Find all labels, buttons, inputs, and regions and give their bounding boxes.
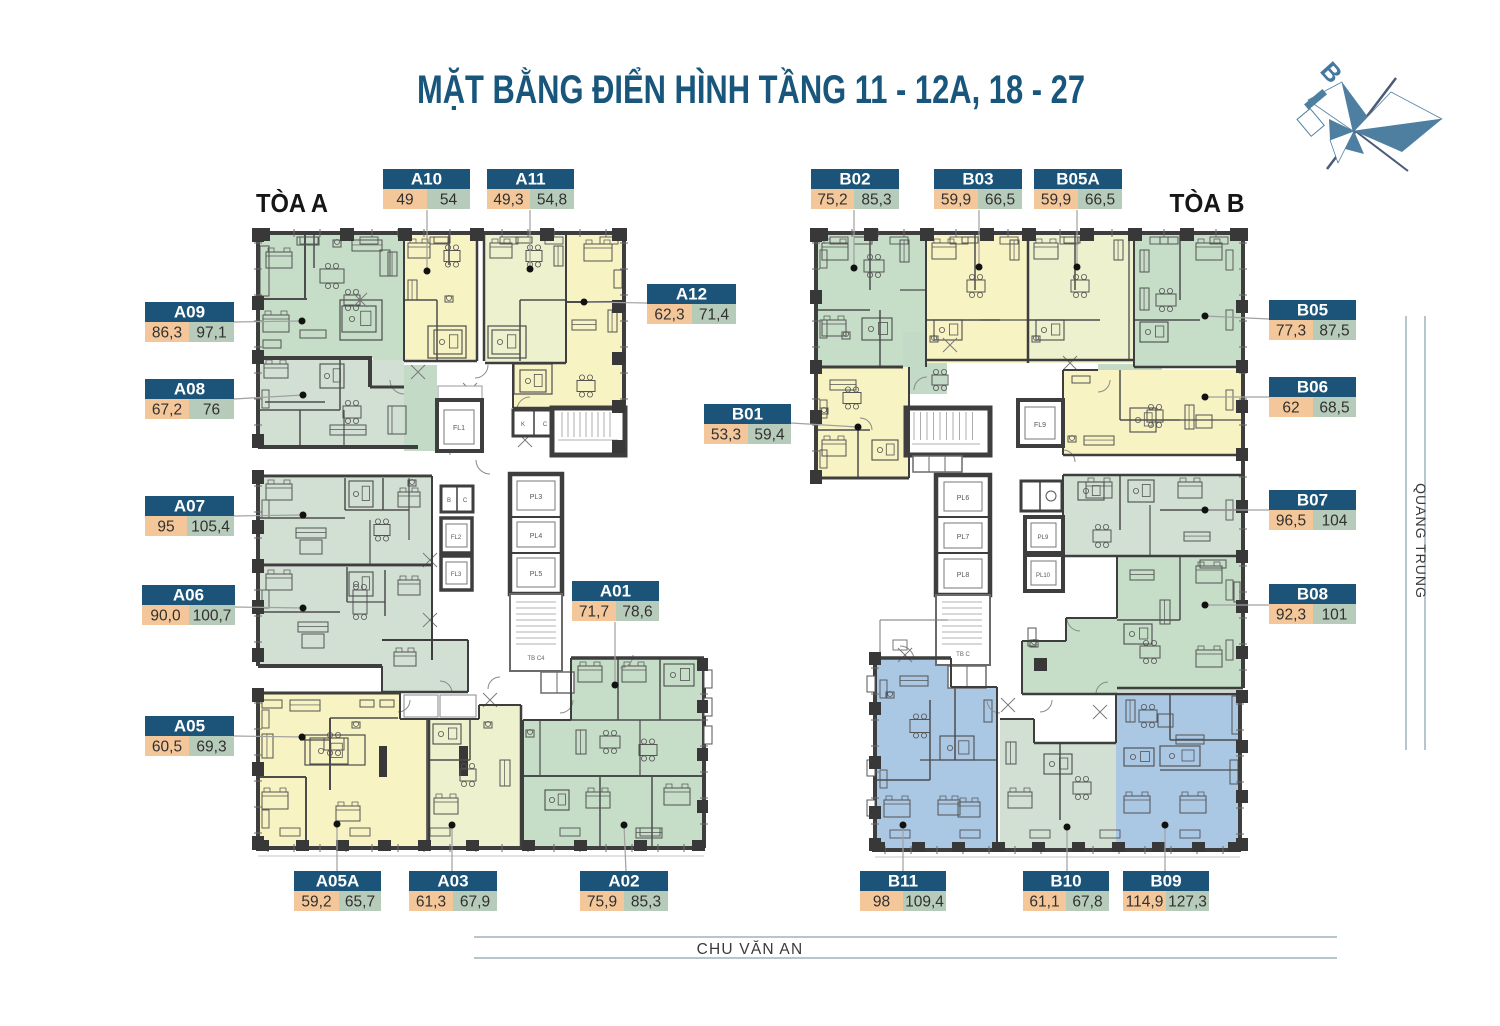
svg-text:85,3: 85,3 [861, 192, 891, 209]
svg-text:B10: B10 [1050, 872, 1081, 891]
svg-text:K: K [521, 422, 525, 428]
svg-text:CHU VĂN AN: CHU VĂN AN [697, 941, 804, 958]
svg-text:PL4: PL4 [530, 533, 543, 540]
svg-text:TÒA A: TÒA A [256, 188, 328, 218]
svg-text:A10: A10 [411, 170, 442, 189]
svg-text:60,5: 60,5 [152, 739, 182, 756]
svg-text:B11: B11 [888, 872, 918, 891]
svg-text:68,5: 68,5 [1319, 400, 1349, 417]
svg-text:87,5: 87,5 [1319, 323, 1349, 340]
svg-text:109,4: 109,4 [905, 894, 944, 911]
svg-text:A12: A12 [676, 285, 707, 304]
svg-text:54,8: 54,8 [537, 192, 567, 209]
svg-text:67,2: 67,2 [152, 402, 182, 419]
svg-text:61,1: 61,1 [1029, 894, 1059, 911]
svg-text:PL5: PL5 [530, 571, 543, 578]
svg-text:B05A: B05A [1056, 170, 1099, 189]
svg-text:C: C [463, 498, 468, 504]
svg-text:A08: A08 [174, 380, 205, 399]
svg-text:97,1: 97,1 [196, 325, 226, 342]
svg-text:59,9: 59,9 [941, 192, 971, 209]
svg-text:76: 76 [203, 402, 220, 419]
svg-text:B06: B06 [1297, 378, 1328, 397]
svg-text:B09: B09 [1150, 872, 1181, 891]
svg-text:B05: B05 [1297, 301, 1328, 320]
svg-text:QUANG TRUNG: QUANG TRUNG [1413, 483, 1429, 599]
svg-text:85,3: 85,3 [631, 894, 661, 911]
svg-text:59,4: 59,4 [754, 427, 785, 444]
svg-text:98: 98 [873, 894, 890, 911]
svg-text:96,5: 96,5 [1276, 513, 1306, 530]
svg-text:A02: A02 [608, 872, 639, 891]
svg-text:69,3: 69,3 [196, 739, 226, 756]
svg-text:C: C [543, 422, 548, 428]
svg-text:A07: A07 [174, 497, 205, 516]
svg-text:66,5: 66,5 [985, 192, 1015, 209]
svg-text:FL2: FL2 [451, 535, 462, 541]
svg-text:101: 101 [1322, 607, 1348, 624]
svg-text:75,9: 75,9 [587, 894, 617, 911]
svg-text:65,7: 65,7 [345, 894, 375, 911]
svg-text:PL6: PL6 [957, 495, 970, 502]
svg-text:B01: B01 [732, 405, 763, 424]
svg-text:PL9: PL9 [1038, 535, 1049, 541]
svg-text:TB C4: TB C4 [527, 656, 545, 662]
svg-text:A03: A03 [437, 872, 468, 891]
svg-text:61,3: 61,3 [416, 894, 446, 911]
svg-text:71,4: 71,4 [699, 307, 730, 324]
svg-text:A09: A09 [174, 303, 205, 322]
svg-text:A05: A05 [174, 717, 205, 736]
svg-text:77,3: 77,3 [1276, 323, 1306, 340]
svg-text:71,7: 71,7 [579, 604, 609, 621]
svg-text:59,2: 59,2 [301, 894, 331, 911]
svg-text:A05A: A05A [316, 872, 359, 891]
svg-text:FL9: FL9 [1034, 422, 1046, 429]
svg-text:62: 62 [1282, 400, 1299, 417]
svg-text:49: 49 [396, 192, 413, 209]
svg-text:105,4: 105,4 [191, 519, 230, 536]
svg-text:66,5: 66,5 [1085, 192, 1115, 209]
svg-text:PL8: PL8 [957, 572, 970, 579]
svg-text:B03: B03 [962, 170, 993, 189]
svg-text:FL3: FL3 [451, 572, 462, 578]
svg-text:104: 104 [1322, 513, 1348, 530]
svg-text:A11: A11 [515, 170, 545, 189]
svg-text:PL3: PL3 [530, 494, 543, 501]
svg-text:67,8: 67,8 [1072, 894, 1102, 911]
svg-text:62,3: 62,3 [654, 307, 684, 324]
svg-text:FL1: FL1 [453, 425, 465, 432]
svg-text:A06: A06 [173, 586, 204, 605]
svg-text:PL10: PL10 [1036, 573, 1051, 579]
svg-text:53,3: 53,3 [711, 427, 741, 444]
svg-text:100,7: 100,7 [193, 608, 232, 625]
svg-text:92,3: 92,3 [1276, 607, 1306, 624]
svg-text:59,9: 59,9 [1041, 192, 1071, 209]
svg-text:PL7: PL7 [957, 534, 970, 541]
svg-text:127,3: 127,3 [1168, 894, 1207, 911]
svg-text:B07: B07 [1297, 491, 1328, 510]
svg-text:TÒA B: TÒA B [1170, 188, 1245, 218]
svg-text:49,3: 49,3 [493, 192, 523, 209]
svg-text:95: 95 [157, 519, 174, 536]
svg-text:MẶT BẰNG ĐIỂN HÌNH TẦNG 11 - 1: MẶT BẰNG ĐIỂN HÌNH TẦNG 11 - 12A, 18 - 2… [417, 65, 1085, 112]
svg-text:A01: A01 [600, 582, 631, 601]
svg-text:B: B [447, 498, 451, 504]
svg-text:B08: B08 [1297, 585, 1328, 604]
svg-text:90,0: 90,0 [150, 608, 181, 625]
svg-text:B02: B02 [839, 170, 870, 189]
svg-text:78,6: 78,6 [622, 604, 652, 621]
svg-text:114,9: 114,9 [1126, 894, 1164, 911]
svg-text:TB C: TB C [956, 652, 970, 658]
svg-text:86,3: 86,3 [152, 325, 182, 342]
svg-text:75,2: 75,2 [817, 192, 847, 209]
svg-text:54: 54 [440, 192, 458, 209]
svg-text:67,9: 67,9 [460, 894, 490, 911]
